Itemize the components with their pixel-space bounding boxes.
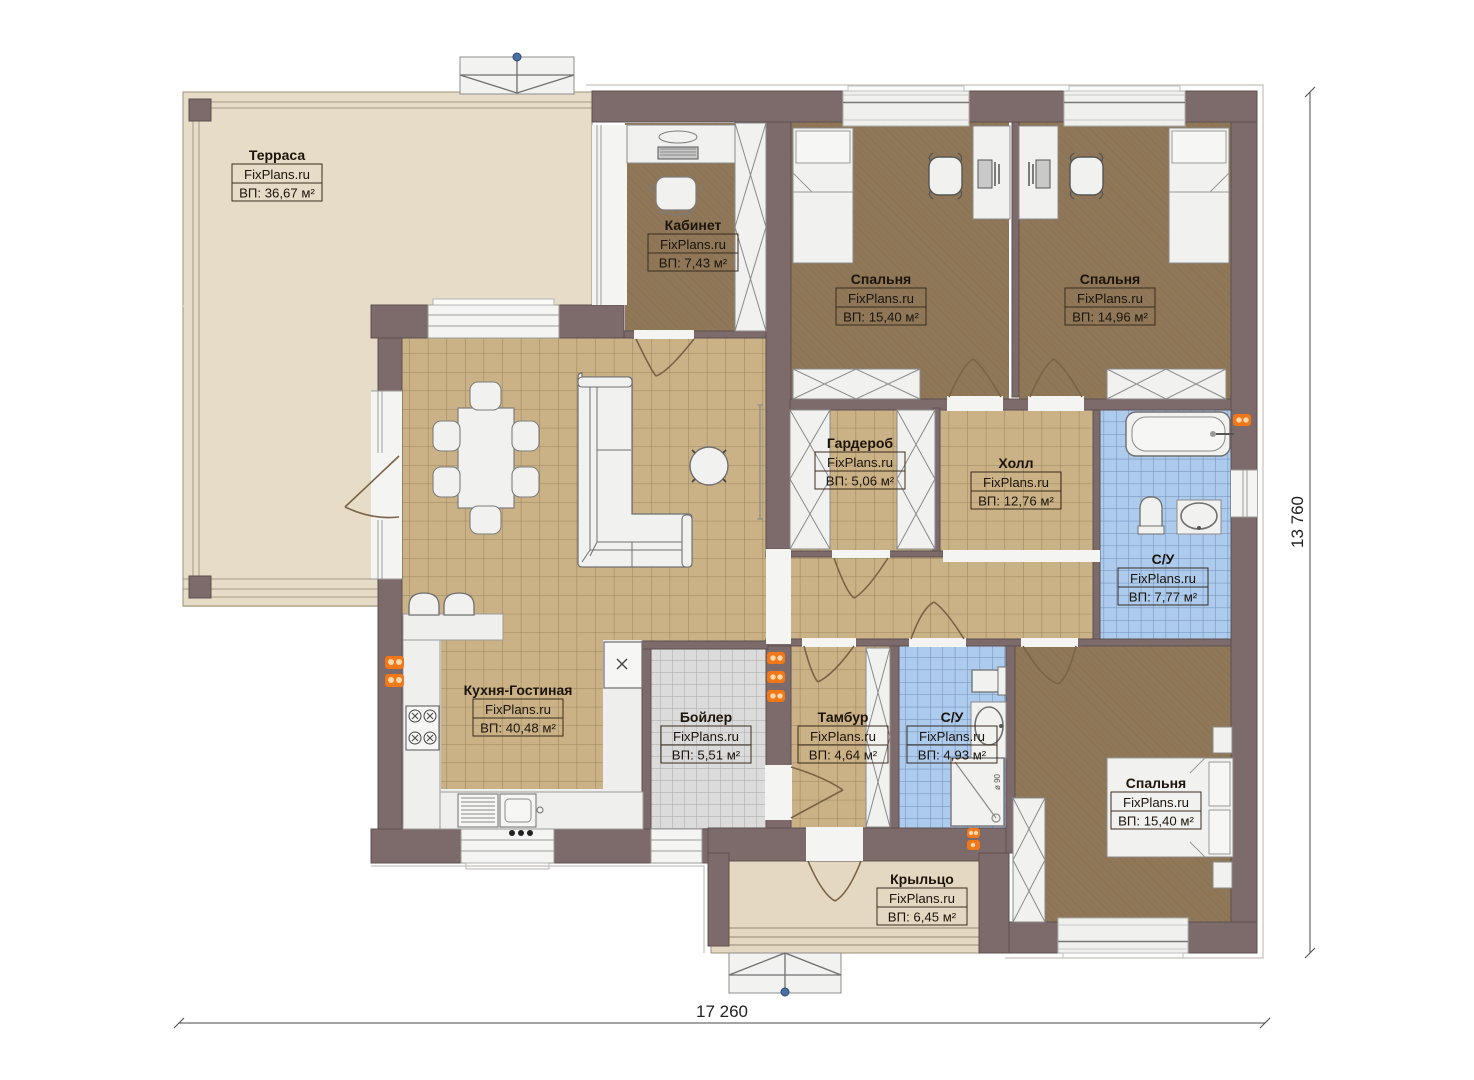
svg-text:ВП: 14,96 м²: ВП: 14,96 м² bbox=[1072, 310, 1148, 325]
svg-text:С/У: С/У bbox=[1152, 551, 1175, 567]
svg-text:FixPlans.ru: FixPlans.ru bbox=[660, 237, 726, 252]
svg-text:FixPlans.ru: FixPlans.ru bbox=[810, 729, 876, 744]
svg-text:13 760: 13 760 bbox=[1288, 496, 1307, 548]
svg-text:17 260: 17 260 bbox=[696, 1002, 748, 1021]
svg-text:ВП: 12,76 м²: ВП: 12,76 м² bbox=[978, 494, 1054, 509]
svg-text:ВП: 6,45 м²: ВП: 6,45 м² bbox=[888, 910, 957, 925]
svg-text:Холл: Холл bbox=[998, 455, 1033, 471]
svg-text:ВП: 4,64 м²: ВП: 4,64 м² bbox=[809, 748, 878, 763]
svg-text:Гардероб: Гардероб bbox=[827, 435, 894, 451]
svg-text:FixPlans.ru: FixPlans.ru bbox=[1130, 571, 1196, 586]
svg-text:FixPlans.ru: FixPlans.ru bbox=[1123, 795, 1189, 810]
svg-text:Терраса: Терраса bbox=[249, 147, 305, 163]
svg-text:ВП: 40,48 м²: ВП: 40,48 м² bbox=[480, 721, 556, 736]
svg-text:FixPlans.ru: FixPlans.ru bbox=[827, 455, 893, 470]
svg-text:Кухня-Гостиная: Кухня-Гостиная bbox=[464, 682, 573, 698]
svg-text:ВП: 15,40 м²: ВП: 15,40 м² bbox=[843, 310, 919, 325]
svg-text:FixPlans.ru: FixPlans.ru bbox=[673, 729, 739, 744]
svg-text:ВП: 36,67 м²: ВП: 36,67 м² bbox=[239, 186, 315, 201]
svg-text:Спальня: Спальня bbox=[1080, 271, 1140, 287]
svg-text:ВП: 7,77 м²: ВП: 7,77 м² bbox=[1129, 590, 1198, 605]
svg-text:ВП: 15,40 м²: ВП: 15,40 м² bbox=[1118, 814, 1194, 829]
svg-text:Тамбур: Тамбур bbox=[818, 709, 869, 725]
svg-text:ВП: 4,93 м²: ВП: 4,93 м² bbox=[918, 748, 987, 763]
svg-text:FixPlans.ru: FixPlans.ru bbox=[919, 729, 985, 744]
svg-text:FixPlans.ru: FixPlans.ru bbox=[983, 475, 1049, 490]
svg-text:FixPlans.ru: FixPlans.ru bbox=[889, 891, 955, 906]
svg-text:FixPlans.ru: FixPlans.ru bbox=[244, 167, 310, 182]
svg-text:FixPlans.ru: FixPlans.ru bbox=[1077, 291, 1143, 306]
svg-text:ø 90: ø 90 bbox=[993, 773, 1002, 790]
svg-text:Бойлер: Бойлер bbox=[680, 709, 732, 725]
svg-text:ВП: 5,51 м²: ВП: 5,51 м² bbox=[672, 748, 741, 763]
svg-text:Спальня: Спальня bbox=[851, 271, 911, 287]
svg-text:FixPlans.ru: FixPlans.ru bbox=[848, 291, 914, 306]
svg-text:Крыльцо: Крыльцо bbox=[890, 871, 954, 887]
svg-text:Спальня: Спальня bbox=[1126, 775, 1186, 791]
svg-text:ВП: 5,06 м²: ВП: 5,06 м² bbox=[826, 474, 895, 489]
svg-text:ВП: 7,43 м²: ВП: 7,43 м² bbox=[659, 256, 728, 271]
svg-text:FixPlans.ru: FixPlans.ru bbox=[485, 702, 551, 717]
svg-text:Кабинет: Кабинет bbox=[665, 217, 722, 233]
svg-text:С/У: С/У bbox=[941, 709, 964, 725]
